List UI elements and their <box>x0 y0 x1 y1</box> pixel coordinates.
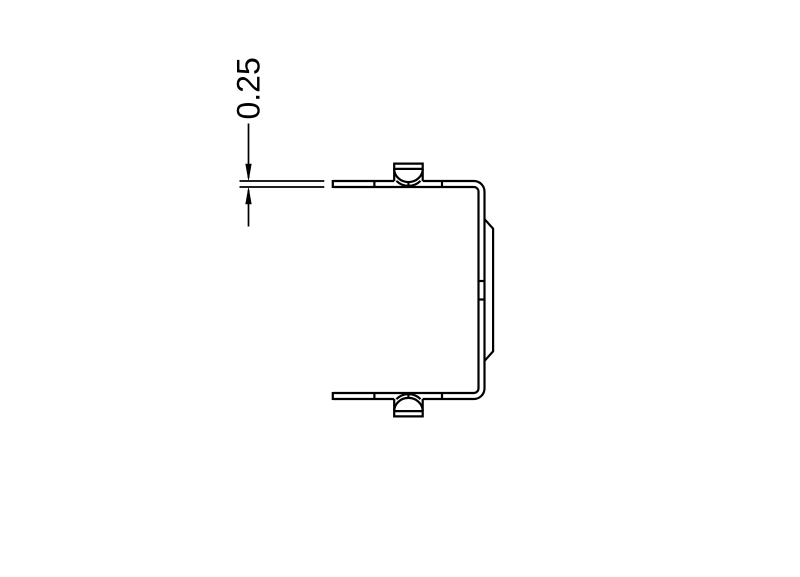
svg-text:0.25: 0.25 <box>231 57 267 119</box>
